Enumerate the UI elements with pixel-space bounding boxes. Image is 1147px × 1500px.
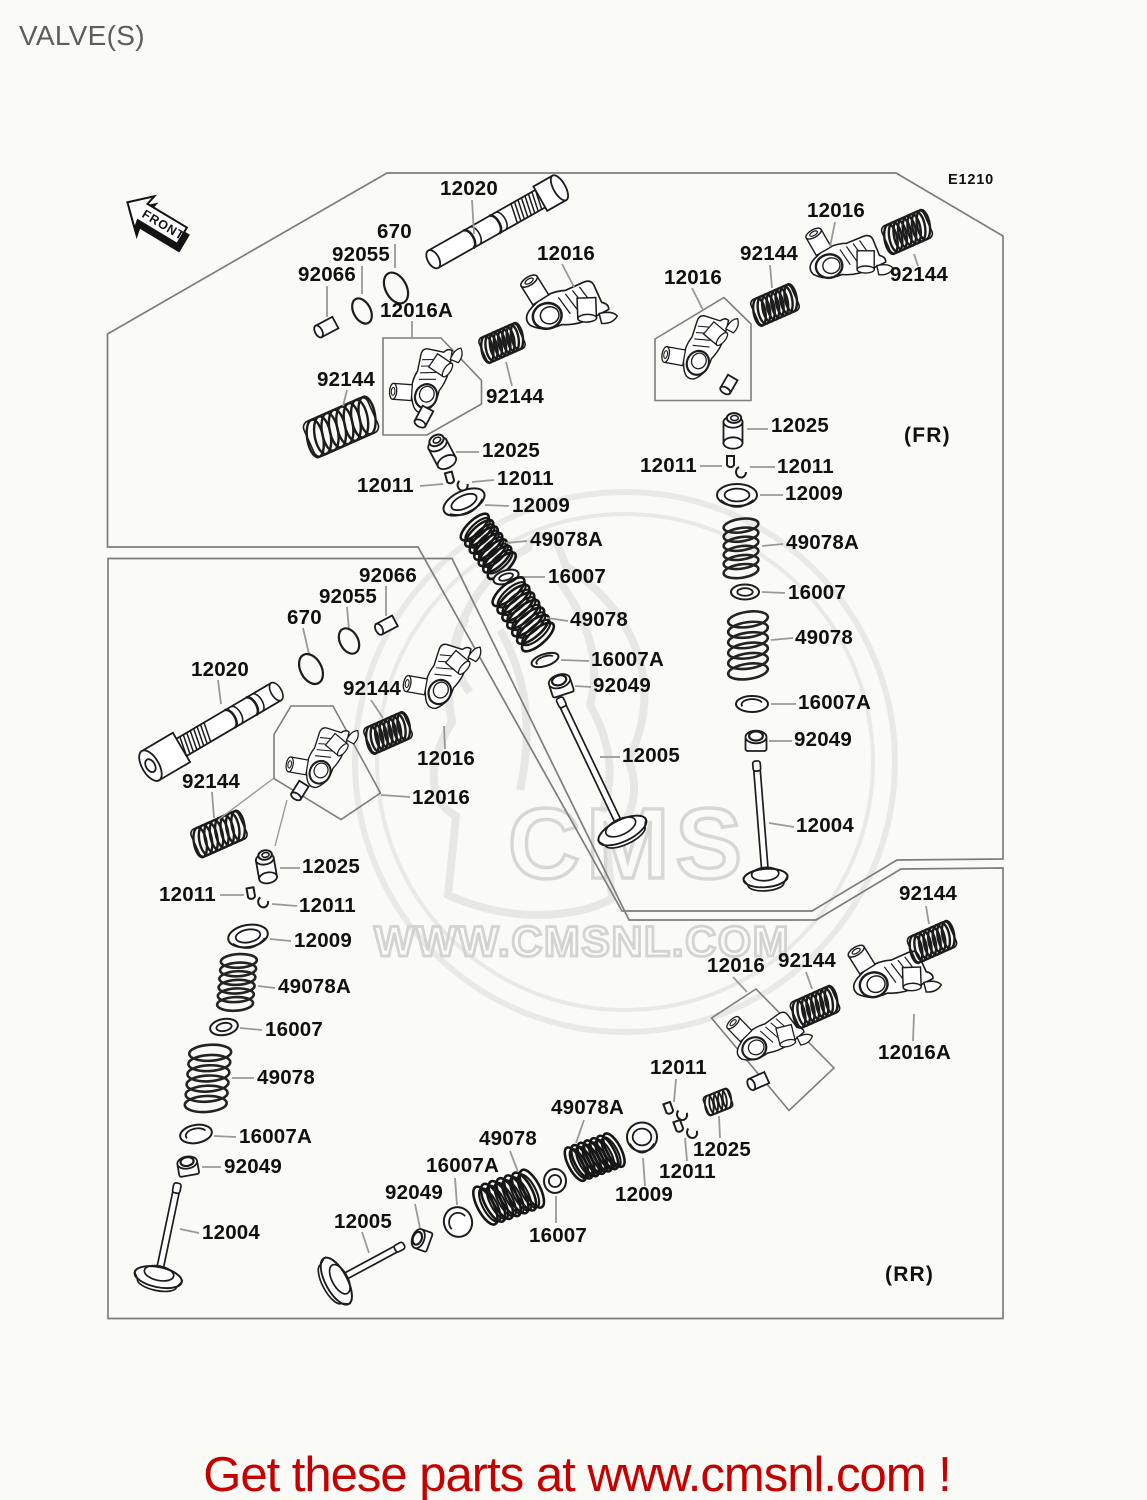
svg-text:12011: 12011 <box>497 467 554 490</box>
svg-text:92144: 92144 <box>890 263 948 286</box>
svg-text:49078A: 49078A <box>551 1096 624 1119</box>
svg-text:92144: 92144 <box>343 677 401 700</box>
svg-text:670: 670 <box>287 606 322 629</box>
svg-text:12016A: 12016A <box>380 299 453 322</box>
svg-text:E1210: E1210 <box>948 172 994 188</box>
svg-text:12009: 12009 <box>785 482 843 505</box>
svg-text:49078: 49078 <box>479 1127 537 1150</box>
svg-text:Get these parts at www.cmsnl.c: Get these parts at www.cmsnl.com ! <box>203 1448 951 1500</box>
svg-text:12005: 12005 <box>334 1210 392 1233</box>
svg-text:12005: 12005 <box>622 744 680 767</box>
svg-text:92055: 92055 <box>319 585 377 608</box>
svg-text:49078: 49078 <box>257 1066 315 1089</box>
svg-text:92144: 92144 <box>182 770 240 793</box>
svg-text:92144: 92144 <box>899 882 957 905</box>
svg-text:12020: 12020 <box>440 177 498 200</box>
svg-text:12011: 12011 <box>299 894 356 917</box>
svg-text:49078: 49078 <box>570 608 628 631</box>
svg-text:16007: 16007 <box>788 581 846 604</box>
svg-text:92144: 92144 <box>778 949 836 972</box>
svg-text:12011: 12011 <box>650 1056 707 1079</box>
svg-text:12025: 12025 <box>302 855 360 878</box>
svg-text:16007A: 16007A <box>239 1125 312 1148</box>
svg-text:12011: 12011 <box>777 455 834 478</box>
svg-text:49078: 49078 <box>795 626 853 649</box>
svg-text:16007A: 16007A <box>591 648 664 671</box>
svg-text:12016: 12016 <box>412 786 470 809</box>
svg-text:16007A: 16007A <box>798 691 871 714</box>
svg-text:12009: 12009 <box>615 1183 673 1206</box>
svg-text:12016: 12016 <box>417 747 475 770</box>
svg-text:(FR): (FR) <box>904 424 951 447</box>
svg-text:670: 670 <box>377 220 412 243</box>
svg-text:92049: 92049 <box>224 1155 282 1178</box>
svg-text:12016: 12016 <box>707 954 765 977</box>
svg-text:92144: 92144 <box>486 385 544 408</box>
svg-text:16007: 16007 <box>548 565 606 588</box>
svg-text:16007A: 16007A <box>426 1154 499 1177</box>
svg-text:92049: 92049 <box>794 728 852 751</box>
svg-text:12011: 12011 <box>640 454 697 477</box>
svg-text:12009: 12009 <box>294 929 352 952</box>
svg-text:12025: 12025 <box>693 1138 751 1161</box>
svg-text:(RR): (RR) <box>885 1263 934 1286</box>
svg-text:92066: 92066 <box>298 263 356 286</box>
svg-text:49078A: 49078A <box>530 528 603 551</box>
svg-text:92144: 92144 <box>317 368 375 391</box>
svg-text:12025: 12025 <box>482 439 540 462</box>
svg-text:12016A: 12016A <box>878 1041 951 1064</box>
svg-text:12009: 12009 <box>512 494 570 517</box>
svg-text:12016: 12016 <box>537 242 595 265</box>
svg-text:12011: 12011 <box>357 474 414 497</box>
svg-text:92144: 92144 <box>740 242 798 265</box>
svg-text:12020: 12020 <box>191 658 249 681</box>
svg-text:12011: 12011 <box>159 883 216 906</box>
svg-text:16007: 16007 <box>265 1018 323 1041</box>
svg-text:VALVE(S): VALVE(S) <box>19 20 145 51</box>
svg-text:12016: 12016 <box>664 266 722 289</box>
svg-text:16007: 16007 <box>529 1224 587 1247</box>
svg-text:12011: 12011 <box>659 1160 716 1183</box>
svg-text:92049: 92049 <box>593 674 651 697</box>
svg-text:92066: 92066 <box>359 564 417 587</box>
svg-text:12004: 12004 <box>796 814 854 837</box>
svg-text:12025: 12025 <box>771 414 829 437</box>
svg-text:12004: 12004 <box>202 1221 260 1244</box>
svg-text:49078A: 49078A <box>786 531 859 554</box>
svg-text:12016: 12016 <box>807 199 865 222</box>
svg-text:49078A: 49078A <box>278 975 351 998</box>
svg-text:92049: 92049 <box>385 1181 443 1204</box>
